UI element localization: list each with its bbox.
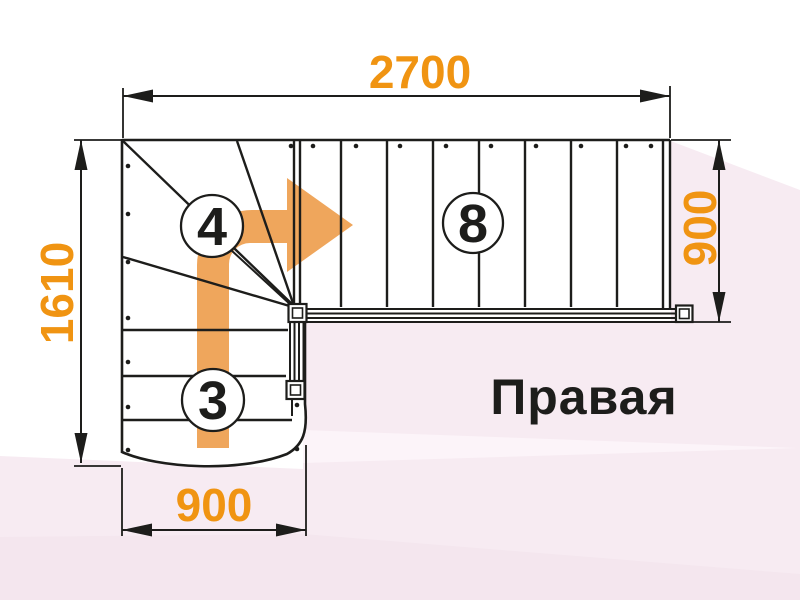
plan-canvas: 4 8 3 bbox=[0, 0, 800, 600]
dim-label-left: 1610 bbox=[31, 242, 83, 344]
orientation-title: Правая bbox=[490, 369, 677, 425]
dim-label-top: 2700 bbox=[369, 46, 471, 98]
winder-count-label: 4 bbox=[197, 197, 227, 257]
lower-count-label: 3 bbox=[198, 371, 228, 431]
dim-label-right: 900 bbox=[674, 190, 726, 267]
staircase-plan-drawing: 4 8 3 bbox=[0, 0, 800, 600]
dim-label-bottom: 900 bbox=[176, 479, 253, 531]
upper-count-label: 8 bbox=[458, 194, 488, 254]
